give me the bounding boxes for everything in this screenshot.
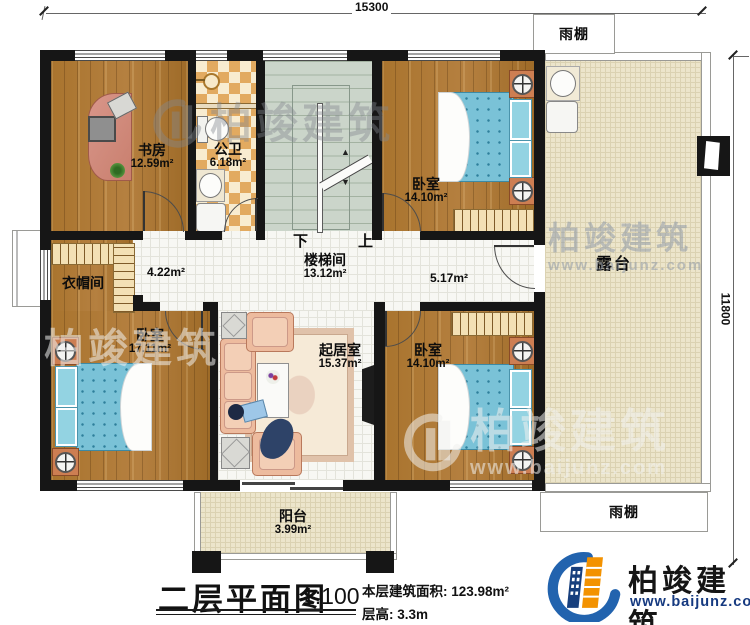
canopy-top-label: 雨棚 — [559, 24, 589, 44]
canopy-top-box: 雨棚 — [533, 14, 615, 54]
balcony-parapet-left — [194, 492, 201, 558]
washer-icon — [196, 203, 226, 232]
room-area: 15.37m² — [319, 358, 362, 371]
person-figure — [228, 404, 244, 420]
dimension-tick — [697, 6, 707, 16]
room-area: 14.10m² — [407, 358, 450, 371]
pillow — [510, 370, 531, 408]
bath-partition — [196, 103, 256, 109]
computer-monitor-icon — [88, 116, 116, 142]
bay-window — [12, 230, 42, 307]
flower-vase-icon — [266, 370, 280, 384]
nightstand — [52, 337, 79, 365]
pillow — [510, 100, 531, 140]
right-dimension-value: 11800 — [718, 290, 732, 329]
wall — [210, 302, 218, 480]
top-dimension-value: 15300 — [352, 0, 391, 14]
room-area: 6.18m² — [210, 157, 246, 170]
door-leaf — [255, 198, 257, 231]
wall — [133, 295, 143, 311]
nightstand-lamp-icon — [55, 341, 76, 362]
dimension-leader — [733, 56, 749, 57]
room-name: 书房 — [138, 143, 166, 158]
wall — [183, 480, 240, 491]
wardrobe — [51, 243, 115, 265]
wardrobe — [453, 209, 534, 232]
nightstand — [509, 70, 536, 98]
door-leaf — [143, 191, 145, 231]
room-name: 卧室 — [414, 343, 442, 358]
door-leaf — [385, 311, 387, 346]
room-area: 17.11m² — [129, 343, 171, 356]
plan-scale: 1:100 — [302, 583, 360, 610]
room-area: 12.59m² — [131, 158, 174, 171]
wardrobe — [113, 243, 135, 313]
wall — [185, 231, 222, 240]
wardrobe — [451, 312, 533, 336]
room-name: 楼梯间 — [304, 253, 346, 268]
room-label-stairwell: 楼梯间 13.12m² — [285, 253, 365, 281]
room-label-cloakroom: 衣帽间 — [52, 276, 114, 291]
stair-arrow-icon: ▼ — [341, 178, 350, 187]
room-label-living: 起居室 15.37m² — [300, 343, 380, 371]
armchair — [246, 312, 294, 352]
wall — [534, 292, 545, 491]
canopy-bottom-label: 雨棚 — [609, 502, 639, 522]
room-name: 卧室 — [136, 328, 164, 343]
window — [77, 480, 183, 491]
terrace-parapet-right — [701, 52, 711, 492]
wall — [372, 61, 382, 240]
nightstand — [509, 177, 536, 205]
balcony-parapet-right — [390, 492, 397, 558]
terrace-washer-icon — [546, 101, 578, 133]
stair-up-label: 上 — [358, 230, 373, 251]
shower-pipe — [196, 79, 205, 81]
pillow — [56, 367, 77, 407]
title-underline — [156, 609, 356, 611]
stair-down-label: 下 — [293, 230, 308, 251]
nightstand-lamp-icon — [512, 341, 533, 362]
door-leaf — [201, 311, 203, 349]
side-table — [221, 312, 247, 339]
window — [196, 50, 227, 61]
nightstand — [509, 446, 536, 474]
wall — [40, 480, 77, 491]
pillow — [510, 141, 531, 177]
floor-area-line: 本层建筑面积: 123.98m² — [362, 580, 509, 600]
sliding-door-panel — [290, 487, 343, 490]
canopy-bottom-box: 雨棚 — [540, 492, 708, 532]
sink-icon — [199, 173, 222, 198]
window — [75, 50, 165, 61]
balcony-pillar — [192, 551, 221, 573]
floor-plan-canvas: 15300 11800 雨棚 雨棚 — [0, 0, 750, 625]
nightstand — [509, 337, 536, 365]
stair-arrow-icon: ▲ — [341, 148, 350, 157]
room-label-balcony: 阳台 3.99m² — [258, 509, 328, 537]
hall-left-area: 4.22m² — [147, 265, 185, 279]
door-leaf — [382, 193, 384, 231]
stair-railing — [317, 103, 323, 233]
company-logo-icon — [540, 550, 622, 622]
wall — [374, 302, 385, 480]
wall — [40, 50, 51, 250]
room-label-study: 书房 12.59m² — [112, 143, 192, 171]
right-dimension-line — [733, 55, 734, 565]
room-name: 起居室 — [319, 343, 361, 358]
wall — [51, 231, 143, 240]
wall — [420, 231, 545, 240]
room-area: 13.12m² — [304, 268, 347, 281]
shower-drain-icon — [203, 73, 220, 90]
room-name: 阳台 — [279, 509, 307, 524]
nightstand-lamp-icon — [512, 181, 533, 202]
hall-right-area: 5.17m² — [430, 271, 468, 285]
sofa-cushion — [224, 372, 252, 400]
wall — [534, 50, 545, 245]
nightstand-lamp-icon — [512, 74, 533, 95]
bed-sheet — [120, 363, 152, 451]
pillow — [56, 408, 77, 446]
room-label-bedroom-left: 卧室 17.11m² — [110, 328, 190, 356]
wall — [420, 302, 534, 311]
terrace-sink-icon — [550, 70, 576, 97]
room-name: 公卫 — [214, 142, 242, 157]
room-label-terrace: 露台 — [596, 250, 632, 274]
room-name: 衣帽间 — [62, 276, 104, 291]
room-area: 14.10m² — [405, 192, 448, 205]
balcony-pillar — [366, 551, 394, 573]
wall — [347, 50, 408, 61]
window — [40, 250, 51, 300]
wall — [227, 50, 263, 61]
nightstand-lamp-icon — [512, 450, 533, 471]
window — [263, 50, 347, 61]
terrace-parapet-bottom — [545, 483, 711, 492]
door-leaf — [494, 245, 534, 247]
company-logo-name: 柏竣建筑 — [628, 556, 750, 625]
wall — [40, 300, 51, 491]
tv — [362, 365, 374, 425]
room-label-bedroom-right: 卧室 14.10m² — [388, 343, 468, 371]
wall — [203, 302, 218, 311]
sofa-cushion — [252, 317, 288, 347]
room-label-bath: 公卫 6.18m² — [188, 142, 268, 170]
room-area: 3.99m² — [275, 524, 311, 537]
company-logo-url: www.baijunz.com — [630, 594, 750, 610]
room-name: 卧室 — [412, 177, 440, 192]
pillow — [510, 409, 531, 445]
toilet-bowl-icon — [205, 117, 229, 141]
wall — [165, 50, 196, 61]
title-underline — [156, 614, 356, 615]
nightstand-lamp-icon — [55, 452, 76, 473]
wall — [343, 480, 450, 491]
sliding-door-panel — [242, 482, 295, 485]
floor-height-line: 层高: 3.3m — [362, 603, 428, 623]
window — [450, 480, 532, 491]
side-table — [221, 437, 250, 469]
nightstand — [52, 448, 79, 476]
room-label-bedroom-top: 卧室 14.10m² — [386, 177, 466, 205]
window — [408, 50, 500, 61]
